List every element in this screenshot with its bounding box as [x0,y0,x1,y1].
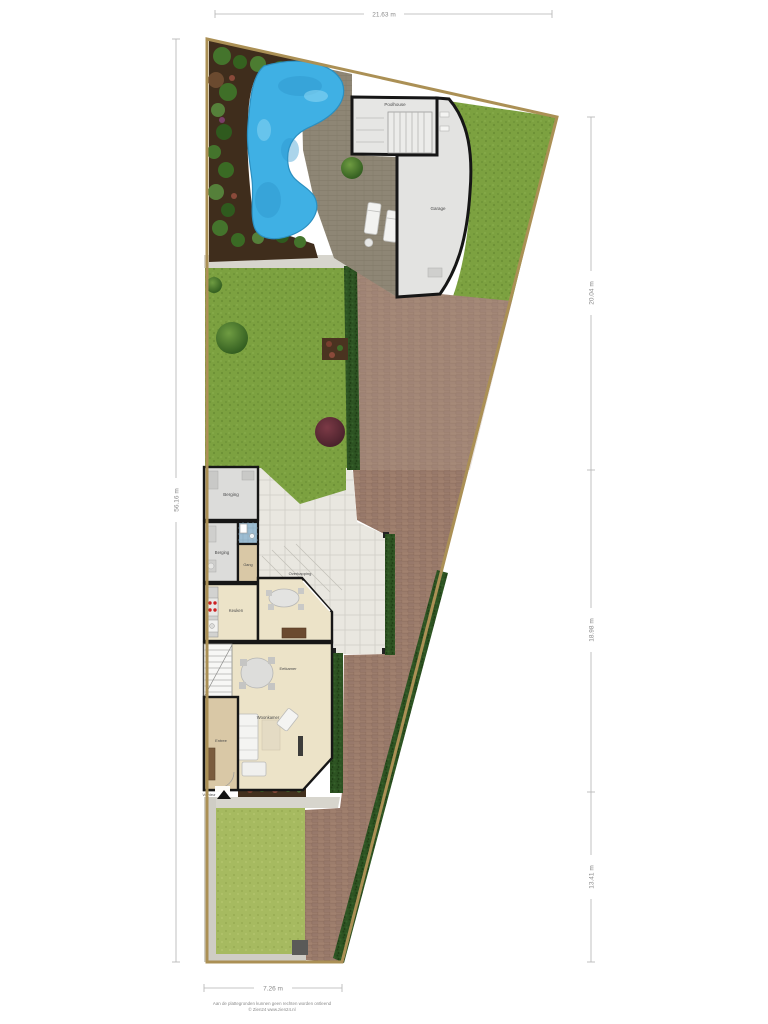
dim-right-middle: 18.98 m [589,618,596,642]
front-door-label: Voordeur [203,793,217,797]
flower-bed [322,338,348,360]
dim-bottom: 7.26 m [263,986,283,993]
sideboard [282,628,306,638]
footer: Aan de plattegronden kunnen geen rechten… [213,1001,332,1012]
poolhouse-stairs [388,112,432,153]
dim-right-top: 20.04 m [589,281,596,305]
dim-left: 56.16 m [174,488,181,512]
room-bathroom [238,522,258,544]
footer-disclaimer: Aan de plattegronden kunnen geen rechten… [213,1001,332,1006]
tv [298,736,303,756]
kitchen-label: Keuken [229,608,244,613]
canopy-label: Overkapping [289,571,312,576]
dim-top: 21.63 m [372,12,396,19]
berging-top-label: Berging [223,492,239,497]
site-plan-page: Poolhouse Garage Berging Berging [0,0,768,1024]
dim-right-bottom: 13.41 m [589,865,596,889]
red-tree [315,417,345,447]
garage-label: Garage [430,206,446,211]
toilet [240,524,247,533]
bench [242,762,266,776]
berging-side-label: Berging [215,550,230,555]
room-kitchen: Keuken [204,584,258,641]
entry-label: Entree [215,738,228,743]
front-door [215,786,230,792]
living-label: Woonkamer [257,715,280,720]
dining-label: Eetkamer [279,666,297,671]
sofa [238,714,258,760]
deck-bush [341,157,363,179]
poolhouse-label: Poolhouse [384,102,406,107]
hall-label: Gang [243,563,252,567]
poolhouse: Poolhouse [352,97,437,155]
room-entry: Entree [204,697,238,792]
footer-copyright: © Zien24 www.zien24.nl [248,1007,295,1012]
floor-plan-svg: Poolhouse Garage Berging Berging [0,0,768,1024]
